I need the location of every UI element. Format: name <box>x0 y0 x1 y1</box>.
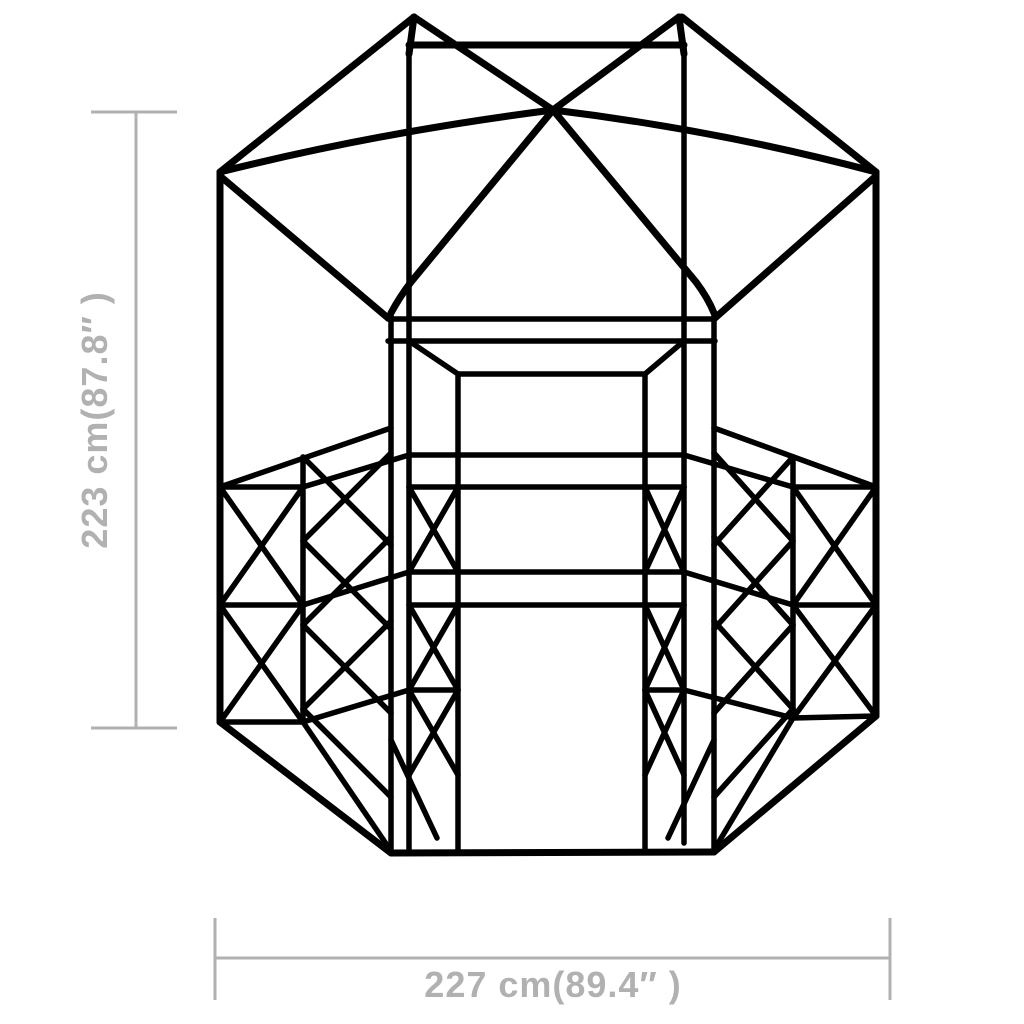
wireframe-diagram-canvas: 223 cm(87.8″ ) 227 cm(89.4″ ) <box>0 0 1024 1024</box>
right-column-braces <box>645 487 684 775</box>
roof-ridge-left <box>220 110 553 172</box>
roof-hip-left <box>391 17 679 313</box>
eave-left <box>220 176 388 318</box>
eave-right <box>715 176 876 318</box>
structure-drawing <box>220 17 876 853</box>
right-side-lattice <box>668 428 876 850</box>
height-dimension-label: 223 cm(87.8″ ) <box>74 291 115 548</box>
roof-ridge-right <box>553 110 876 172</box>
left-side-lattice <box>220 428 437 851</box>
roof-hip-right <box>414 17 714 313</box>
left-column-braces <box>409 487 458 775</box>
product-dimension-diagram: 223 cm(87.8″ ) 227 cm(89.4″ ) <box>0 0 1024 1024</box>
width-dimension-label: 227 cm(89.4″ ) <box>424 964 681 1005</box>
roof-frame <box>220 17 876 318</box>
